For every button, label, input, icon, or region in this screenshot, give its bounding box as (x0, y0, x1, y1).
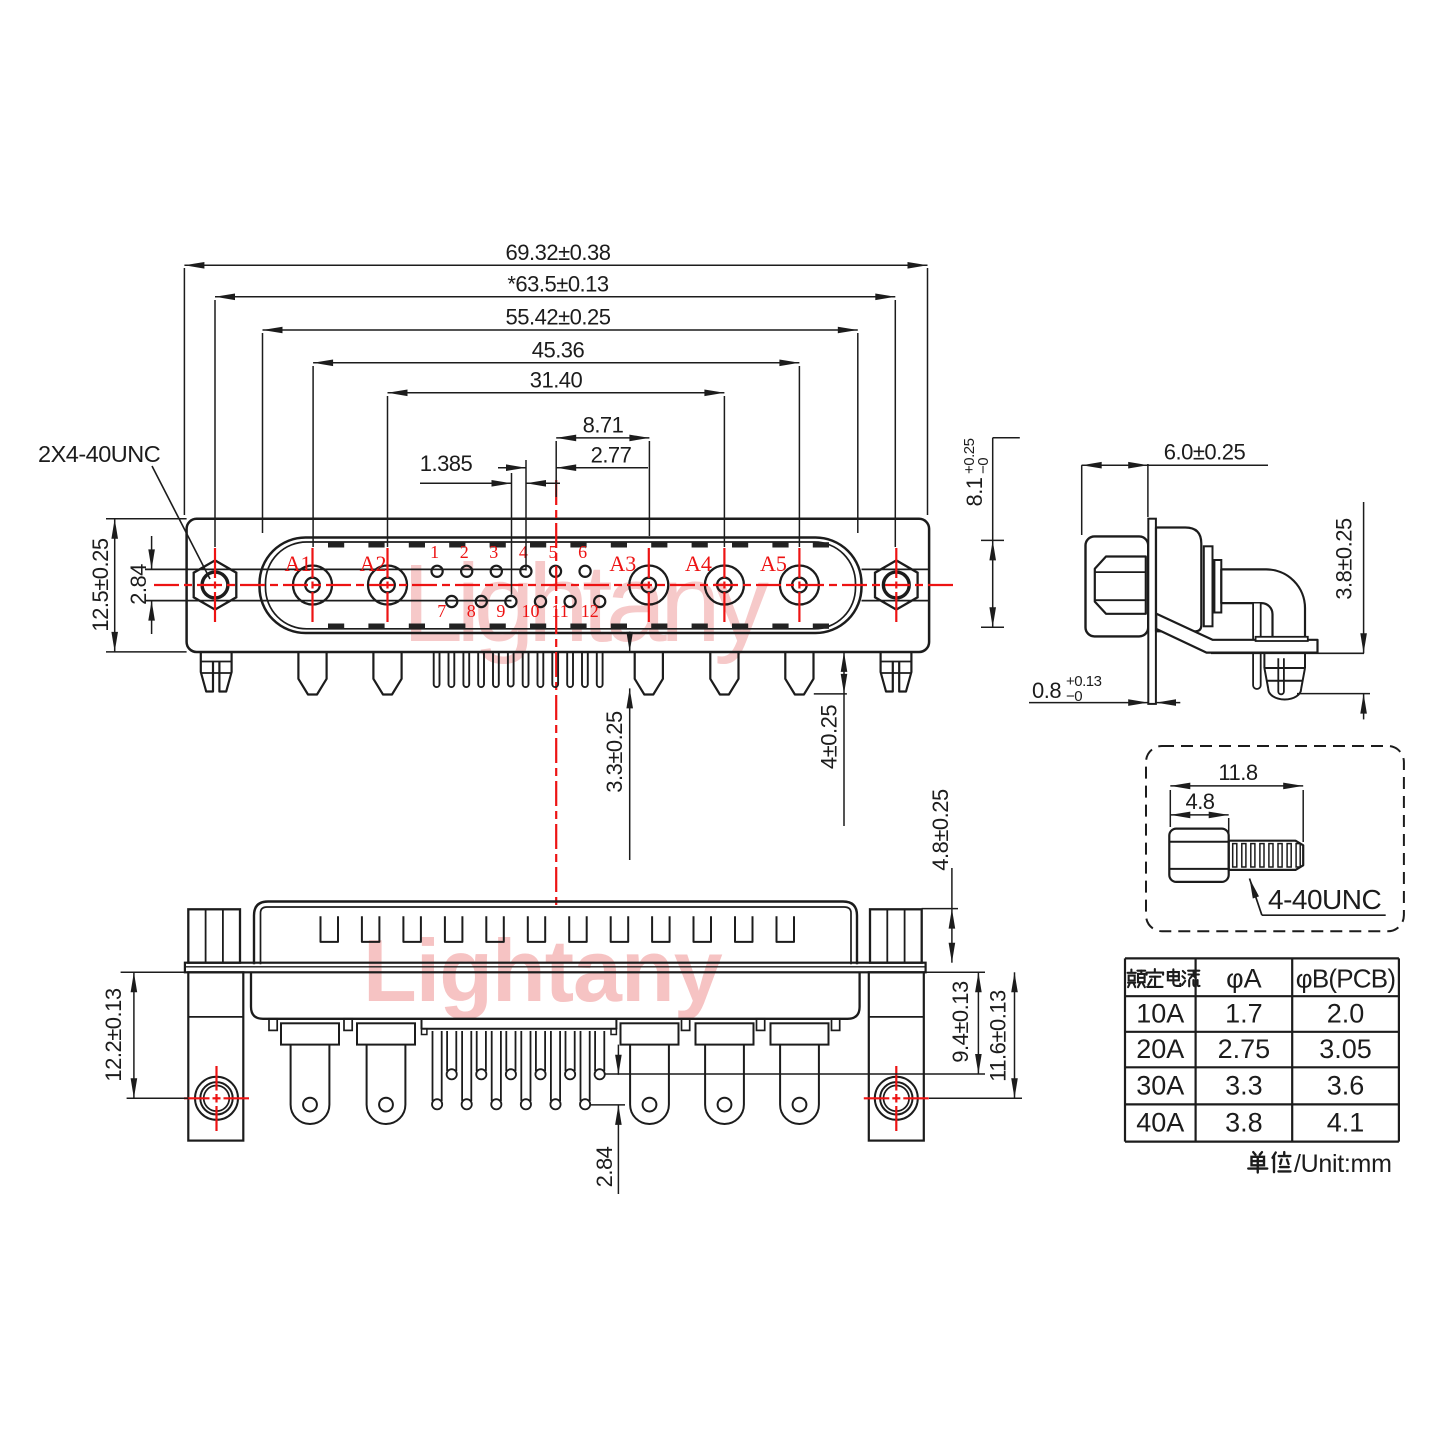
svg-text:2.75: 2.75 (1218, 1034, 1271, 1064)
svg-text:12: 12 (581, 601, 599, 621)
svg-text:40A: 40A (1136, 1108, 1184, 1138)
svg-text:3.05: 3.05 (1319, 1034, 1372, 1064)
svg-text:11: 11 (551, 601, 568, 621)
svg-text:2.77: 2.77 (591, 442, 632, 467)
svg-text:/Unit:mm: /Unit:mm (1294, 1150, 1392, 1178)
svg-text:*63.5±0.13: *63.5±0.13 (507, 272, 609, 297)
svg-text:A3: A3 (609, 551, 636, 576)
svg-text:0.8: 0.8 (1032, 678, 1061, 703)
svg-text:2: 2 (460, 542, 469, 562)
svg-text:11.8: 11.8 (1218, 760, 1257, 785)
svg-text:4±0.25: 4±0.25 (817, 705, 842, 769)
svg-text:2X4-40UNC: 2X4-40UNC (38, 441, 161, 467)
svg-text:φB(PCB): φB(PCB) (1296, 964, 1396, 994)
svg-text:2.0: 2.0 (1327, 999, 1365, 1029)
svg-text:2.84: 2.84 (592, 1146, 617, 1187)
svg-text:3.6: 3.6 (1327, 1071, 1365, 1101)
svg-text:4-40UNC: 4-40UNC (1268, 884, 1381, 915)
svg-text:A1: A1 (285, 551, 312, 576)
svg-text:A5: A5 (760, 551, 787, 576)
svg-text:12.2±0.13: 12.2±0.13 (101, 988, 126, 1081)
svg-text:φA: φA (1226, 964, 1262, 994)
svg-text:1: 1 (430, 542, 439, 562)
svg-text:3.3: 3.3 (1225, 1071, 1263, 1101)
svg-text:31.40: 31.40 (530, 368, 583, 393)
svg-text:10: 10 (522, 601, 540, 621)
svg-text:9: 9 (496, 601, 505, 621)
svg-text:2.84: 2.84 (126, 564, 151, 605)
svg-text:8.1: 8.1 (962, 477, 987, 506)
svg-text:69.32±0.38: 69.32±0.38 (506, 240, 611, 265)
svg-text:20A: 20A (1136, 1034, 1184, 1064)
svg-text:4.1: 4.1 (1327, 1108, 1365, 1138)
svg-text:1.385: 1.385 (420, 451, 473, 476)
svg-text:30A: 30A (1136, 1071, 1184, 1101)
svg-text:45.36: 45.36 (532, 338, 585, 363)
svg-text:4.8±0.25: 4.8±0.25 (928, 789, 953, 871)
svg-text:A4: A4 (685, 551, 712, 576)
svg-text:10A: 10A (1136, 999, 1184, 1029)
svg-text:8: 8 (467, 601, 476, 621)
svg-text:3.8±0.25: 3.8±0.25 (1332, 518, 1357, 600)
svg-text:3.3±0.25: 3.3±0.25 (602, 711, 627, 793)
svg-text:8.71: 8.71 (583, 413, 624, 438)
svg-text:12.5±0.25: 12.5±0.25 (88, 538, 113, 631)
svg-text:7: 7 (437, 601, 446, 621)
svg-text:4.8: 4.8 (1185, 789, 1214, 814)
svg-text:9.4±0.13: 9.4±0.13 (948, 981, 973, 1063)
svg-text:3: 3 (489, 542, 498, 562)
svg-text:A2: A2 (360, 551, 387, 576)
svg-text:1.7: 1.7 (1225, 999, 1263, 1029)
svg-text:6: 6 (578, 542, 587, 562)
svg-text:11.6±0.13: 11.6±0.13 (986, 990, 1011, 1082)
svg-text:55.42±0.25: 55.42±0.25 (506, 305, 611, 330)
svg-text:3.8: 3.8 (1225, 1108, 1263, 1138)
svg-text:6.0±0.25: 6.0±0.25 (1164, 440, 1246, 465)
